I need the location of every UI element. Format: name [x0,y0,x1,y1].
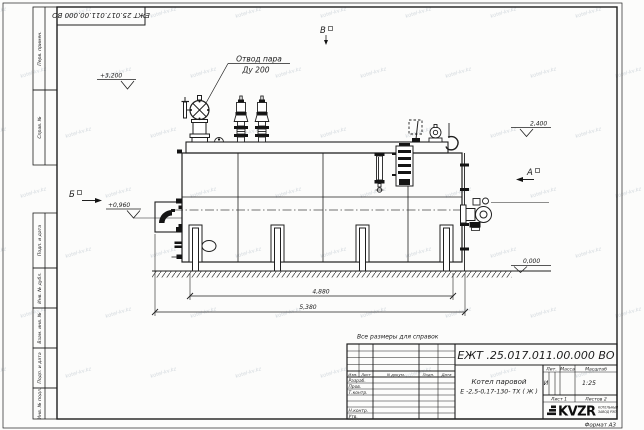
product-name-1: Котел паровой [472,378,527,386]
steam-valve [182,96,210,143]
callout-text-line1: Отвод пара [236,55,282,64]
left-wall-fittings [172,150,183,260]
elevation-2400: 2,400 [511,121,551,137]
margin-columns: Перв. примен. Справ. № Подп. и дата Инв.… [33,7,57,419]
burner-unit [461,198,550,231]
svg-text:Разраб.: Разраб. [349,378,366,384]
door-handle [159,210,172,223]
svg-text:4,880: 4,880 [312,289,329,296]
svg-text:Т.контр.: Т.контр. [349,390,368,396]
svg-text:А: А [526,168,533,178]
callout-steam-outlet: Отвод пара Ду 200 [206,55,290,104]
lit-massa-masshtab: Лит. Масса Масштаб И 1:25 Лист 1 Листов … [544,366,607,402]
sheet-label: Лист 1 [550,396,567,402]
view-arrow-v: В [320,26,333,45]
callout-text-line2: Ду 200 [242,66,270,75]
margin-label-perv-primen: Перв. примен. [37,31,43,66]
sheets-label: Листов 2 [584,396,607,402]
logo-sub-2: ЗАВОД РЭП [598,410,617,414]
hidden-fitting-dashed [409,120,422,134]
dome-fitting [215,138,224,143]
elevation-0000: 0,000 [511,258,551,273]
lit-value: И [544,380,549,387]
svg-text:Н.контр.: Н.контр. [349,408,369,414]
svg-text:В: В [320,26,326,36]
elevation-plus3200: +3,200 [97,73,136,90]
safety-valve-1 [234,96,248,142]
svg-text:Масса: Масса [560,366,575,372]
svg-text:Изм.: Изм. [348,372,357,377]
logo-sub-1: КОТЕЛЬНЫЙ [598,405,619,410]
scale-value: 1:25 [582,380,596,387]
top-stamp-number: ЕЖТ 25.017.011.00.000 ВО [52,11,150,19]
svg-text:Дата: Дата [440,372,452,377]
svg-text:Б: Б [69,190,75,200]
signature-rows: Разраб. Пров. Т.контр. Н.контр. Утв. [349,378,369,420]
svg-text:2,400: 2,400 [530,121,547,128]
manhole-oval [202,241,216,252]
title-block: Все размеры для справок [347,334,619,429]
drawing-sheet: kotel-kv.kzkotel-kv.kzkotel-kv.kzkotel-k… [0,0,644,430]
svg-text:Пров.: Пров. [349,384,362,390]
format-label: Формат А3 [585,423,617,429]
margin-label-inv-podl: Инв. № подл. [37,388,43,420]
panel-seams [182,153,462,262]
view-arrow-b: Б [69,190,102,203]
svg-text:Утв.: Утв. [349,414,358,420]
logo-text: KVZR [558,405,596,420]
revision-headers: Изм. Лист N докум. Подп. Дата [348,372,452,377]
top-stamp: ЕЖТ 25.017.011.00.000 ВО [52,7,150,25]
svg-text:+0,960: +0,960 [108,202,130,209]
svg-text:N докум.: N докум. [387,372,405,377]
doc-number: ЕЖТ .25.017.011.00.000 ВО [457,349,615,362]
svg-text:Масштаб: Масштаб [585,366,607,372]
water-gauge-glass [375,153,385,193]
lever-fitting [412,121,420,142]
safety-valve-2 [255,96,269,142]
ground-hatch [152,272,512,278]
drawing-canvas: Перв. примен. Справ. № Подп. и дата Инв.… [0,0,644,430]
margin-label-inv-dubl: Инв. № дубл. [37,272,43,303]
boiler-view: Отвод пара Ду 200 +3,200 2,400 +0,960 [69,26,551,316]
svg-text:Подп.: Подп. [423,372,435,377]
svg-text:+3,200: +3,200 [100,73,122,80]
margin-label-vzam-inv: Взам. инв. № [37,312,43,343]
kvzr-logo: KVZR КОТЕЛЬНЫЙ ЗАВОД РЭП [547,405,619,420]
cap-fitting [429,125,442,143]
sheet-frame [3,3,622,428]
view-arrow-a: А [516,168,540,182]
margin-label-podp-data-1: Подп. и дата [37,225,43,256]
water-column [392,143,413,186]
product-name-2: Е -2,5-0,17-130- ТХ ( Ж ) [460,389,538,396]
support-legs [189,225,453,271]
svg-text:5,380: 5,380 [299,304,316,311]
boiler-body [182,153,462,262]
svg-text:Лист: Лист [360,372,372,377]
margin-label-podp-data-2: Подп. и дата [37,352,43,383]
margin-label-sprav-no: Справ. № [37,116,43,139]
svg-text:0,000: 0,000 [523,258,540,265]
svg-text:Лит.: Лит. [545,366,557,372]
reference-note: Все размеры для справок [357,334,439,341]
